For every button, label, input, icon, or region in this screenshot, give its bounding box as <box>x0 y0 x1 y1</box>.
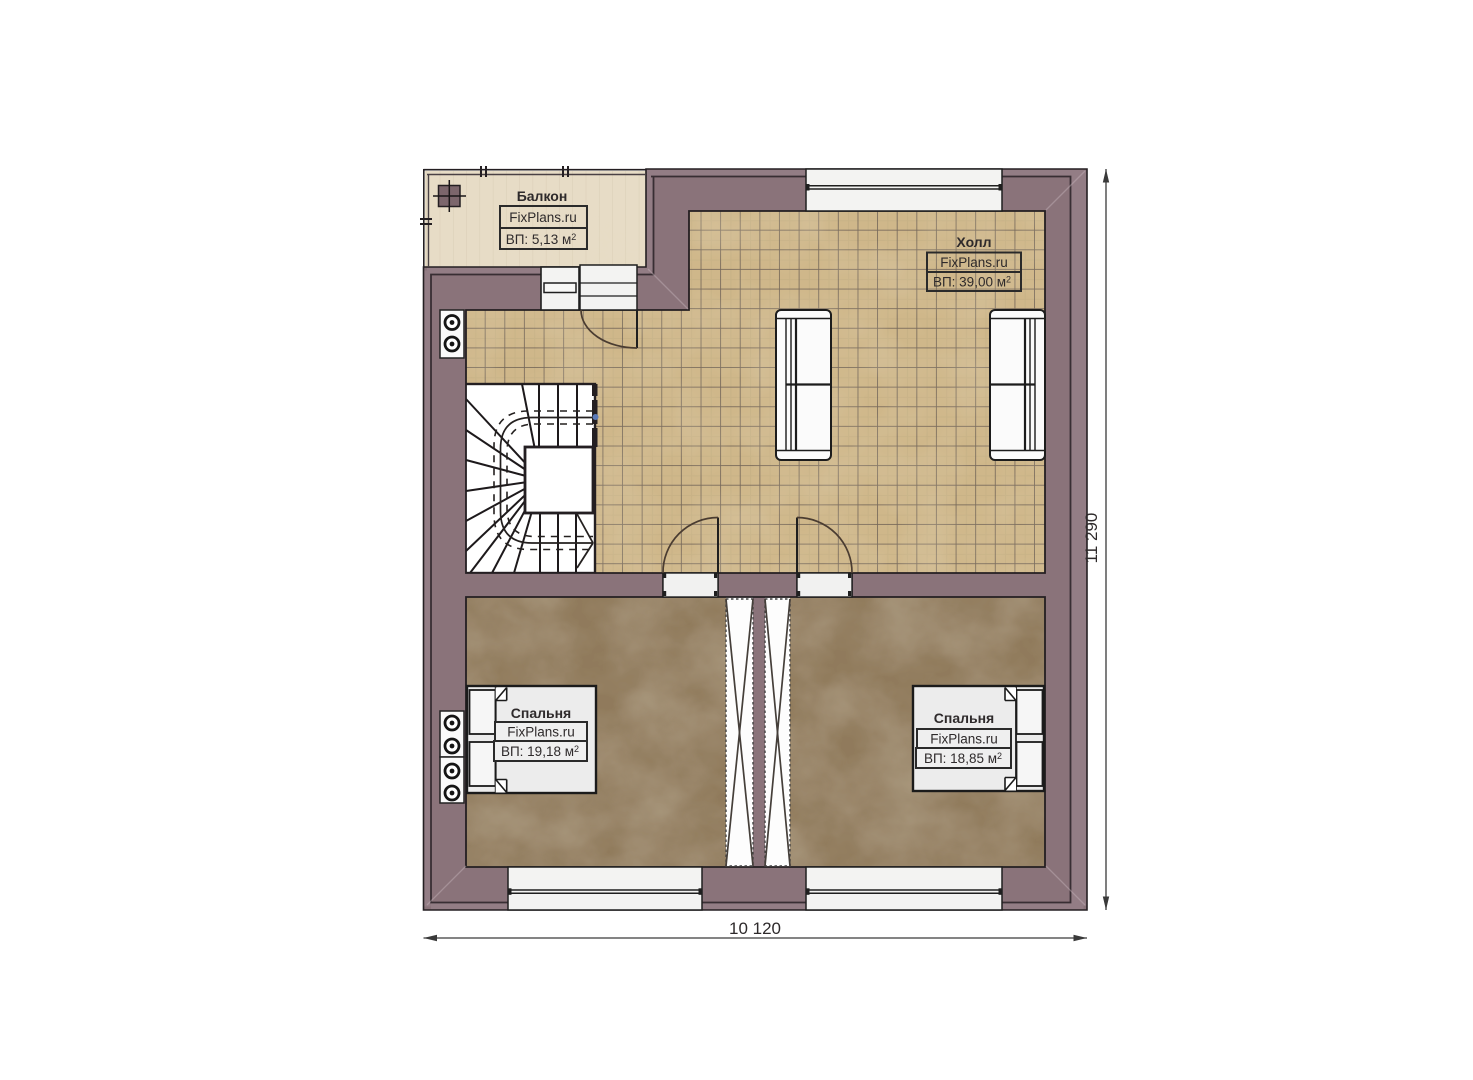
svg-text:Балкон: Балкон <box>517 188 568 204</box>
svg-text:Холл: Холл <box>956 234 991 250</box>
svg-text:ВП: 39,00 м2: ВП: 39,00 м2 <box>933 275 1011 290</box>
svg-text:11 290: 11 290 <box>1082 513 1101 564</box>
svg-text:Спальня: Спальня <box>511 705 571 721</box>
svg-text:Спальня: Спальня <box>934 710 994 726</box>
svg-text:ВП: 18,85 м2: ВП: 18,85 м2 <box>924 751 1002 766</box>
svg-text:FixPlans.ru: FixPlans.ru <box>509 210 577 225</box>
svg-text:ВП: 5,13 м2: ВП: 5,13 м2 <box>506 232 577 247</box>
svg-text:10 120: 10 120 <box>729 919 781 938</box>
svg-text:FixPlans.ru: FixPlans.ru <box>930 732 998 747</box>
svg-text:ВП: 19,18 м2: ВП: 19,18 м2 <box>501 744 579 759</box>
svg-text:FixPlans.ru: FixPlans.ru <box>507 725 575 740</box>
svg-text:FixPlans.ru: FixPlans.ru <box>940 255 1008 270</box>
